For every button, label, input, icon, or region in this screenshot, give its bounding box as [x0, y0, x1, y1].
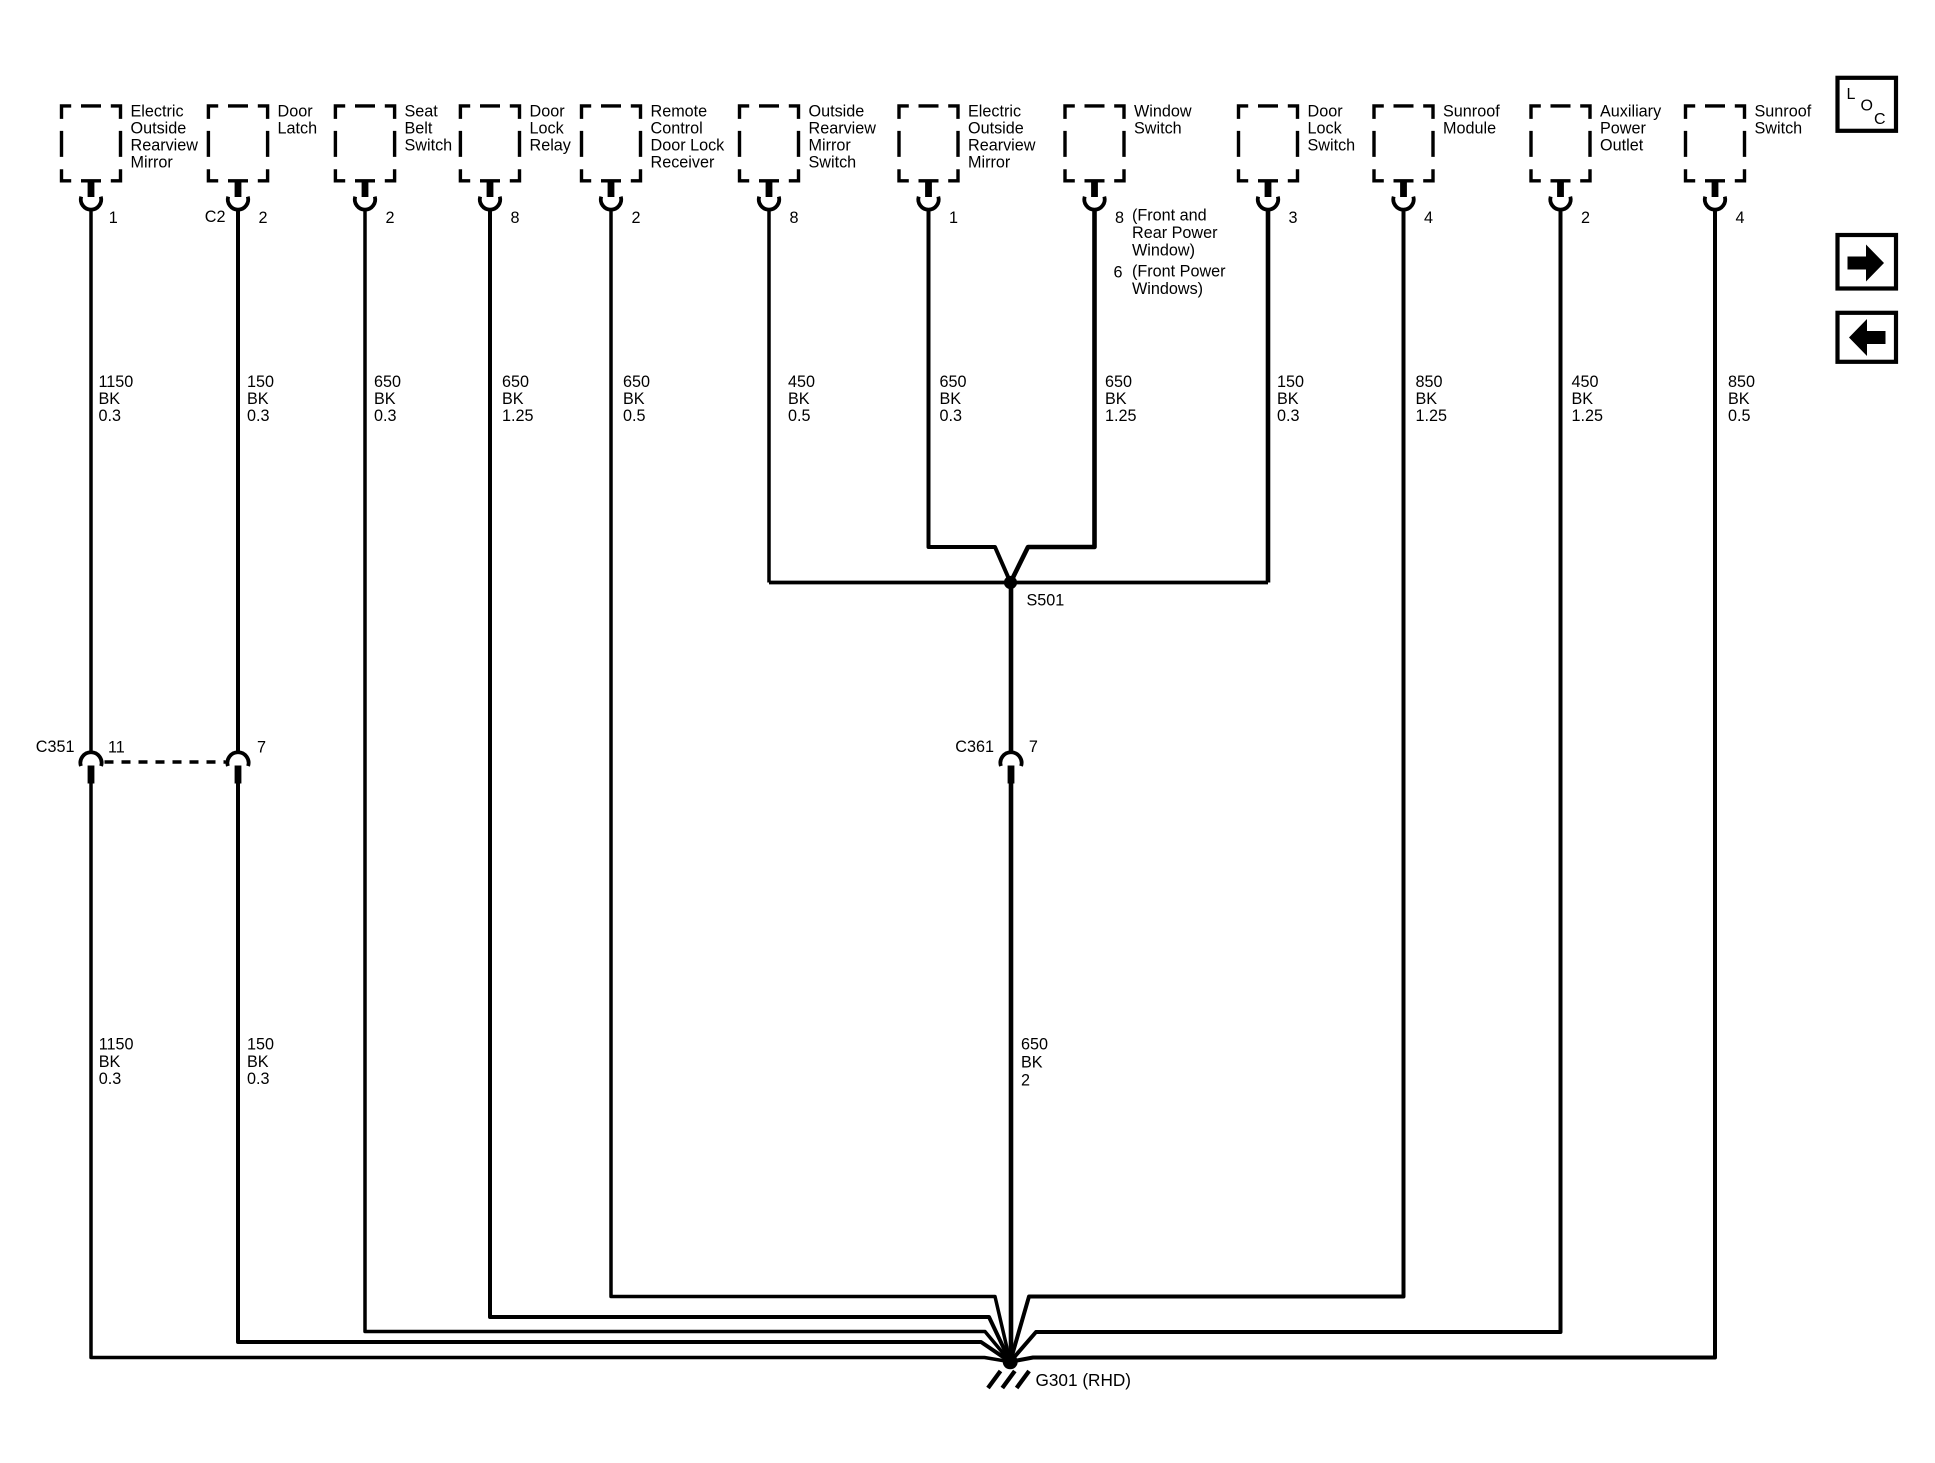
svg-text:BK: BK [1728, 390, 1750, 408]
svg-text:L: L [1847, 86, 1856, 103]
svg-text:7: 7 [1029, 738, 1038, 756]
svg-text:BK: BK [1277, 390, 1299, 408]
svg-text:150: 150 [1277, 373, 1304, 391]
svg-text:1150: 1150 [99, 373, 134, 391]
svg-text:Door: Door [1308, 103, 1344, 121]
svg-text:BK: BK [99, 1053, 121, 1071]
svg-text:Window: Window [1134, 103, 1192, 121]
svg-text:0.3: 0.3 [247, 1070, 270, 1088]
svg-text:Receiver: Receiver [651, 153, 715, 171]
svg-text:Switch: Switch [1134, 120, 1182, 138]
svg-text:Outlet: Outlet [1600, 137, 1644, 155]
svg-text:11: 11 [108, 739, 125, 757]
svg-text:Door Lock: Door Lock [651, 137, 726, 155]
svg-text:650: 650 [623, 373, 650, 391]
svg-text:BK: BK [1021, 1054, 1043, 1072]
svg-text:450: 450 [1572, 373, 1599, 391]
svg-text:0.3: 0.3 [1277, 407, 1300, 425]
svg-text:Electric: Electric [968, 103, 1021, 121]
svg-text:0.3: 0.3 [374, 407, 397, 425]
svg-text:G301 (RHD): G301 (RHD) [1036, 1370, 1132, 1390]
svg-text:Remote: Remote [651, 103, 708, 121]
svg-text:Electric: Electric [131, 103, 184, 121]
svg-text:0.3: 0.3 [99, 1070, 122, 1088]
svg-text:0.3: 0.3 [247, 407, 270, 425]
svg-text:Outside: Outside [809, 103, 865, 121]
svg-text:Auxiliary: Auxiliary [1600, 103, 1662, 121]
svg-text:Relay: Relay [530, 137, 572, 155]
svg-text:1: 1 [949, 209, 958, 227]
svg-text:Seat: Seat [405, 103, 439, 121]
svg-text:(Front Power: (Front Power [1132, 263, 1226, 281]
svg-text:0.5: 0.5 [1728, 407, 1751, 425]
svg-text:Switch: Switch [809, 153, 857, 171]
svg-text:Switch: Switch [1308, 137, 1356, 155]
svg-text:Lock: Lock [1308, 120, 1343, 138]
svg-text:BK: BK [1416, 390, 1438, 408]
svg-text:BK: BK [99, 390, 121, 408]
svg-text:8: 8 [790, 209, 799, 227]
svg-text:Rearview: Rearview [968, 137, 1036, 155]
svg-text:BK: BK [1572, 390, 1594, 408]
svg-text:BK: BK [788, 390, 810, 408]
svg-text:Belt: Belt [405, 120, 433, 138]
svg-text:S501: S501 [1027, 592, 1065, 610]
svg-text:C361: C361 [955, 738, 994, 756]
svg-text:C2: C2 [205, 208, 226, 226]
svg-text:1.25: 1.25 [1105, 407, 1137, 425]
svg-text:Rear Power: Rear Power [1132, 224, 1218, 242]
svg-text:2: 2 [259, 209, 268, 227]
svg-text:1.25: 1.25 [502, 407, 534, 425]
svg-text:2: 2 [632, 209, 641, 227]
svg-text:650: 650 [1105, 373, 1132, 391]
svg-text:650: 650 [502, 373, 529, 391]
svg-text:8: 8 [511, 209, 520, 227]
svg-text:BK: BK [502, 390, 524, 408]
svg-text:3: 3 [1289, 209, 1298, 227]
svg-text:Window): Window) [1132, 242, 1195, 260]
svg-text:0.5: 0.5 [788, 407, 811, 425]
svg-text:450: 450 [788, 373, 815, 391]
svg-text:0.3: 0.3 [940, 407, 963, 425]
svg-text:650: 650 [940, 373, 967, 391]
svg-text:8: 8 [1115, 209, 1124, 227]
svg-text:850: 850 [1728, 373, 1755, 391]
svg-text:Switch: Switch [1755, 120, 1803, 138]
svg-text:BK: BK [247, 390, 269, 408]
svg-text:Sunroof: Sunroof [1443, 103, 1500, 121]
svg-text:6: 6 [1114, 264, 1123, 282]
svg-text:Windows): Windows) [1132, 280, 1203, 298]
svg-text:Rearview: Rearview [131, 137, 199, 155]
svg-text:150: 150 [247, 1036, 274, 1054]
svg-text:4: 4 [1424, 209, 1433, 227]
svg-text:650: 650 [374, 373, 401, 391]
svg-text:7: 7 [257, 739, 266, 757]
svg-text:Mirror: Mirror [968, 153, 1011, 171]
svg-text:1: 1 [109, 209, 118, 227]
svg-text:1150: 1150 [99, 1036, 134, 1054]
svg-text:Switch: Switch [405, 137, 453, 155]
svg-text:Mirror: Mirror [809, 137, 852, 155]
svg-text:Outside: Outside [131, 120, 187, 138]
svg-text:2: 2 [1021, 1071, 1030, 1089]
svg-text:Door: Door [530, 103, 566, 121]
svg-text:1.25: 1.25 [1416, 407, 1448, 425]
svg-text:Control: Control [651, 120, 703, 138]
svg-text:2: 2 [1581, 209, 1590, 227]
svg-text:650: 650 [1021, 1036, 1048, 1054]
svg-text:0.5: 0.5 [623, 407, 646, 425]
svg-text:Outside: Outside [968, 120, 1024, 138]
svg-text:Latch: Latch [278, 120, 318, 138]
svg-text:O: O [1861, 98, 1873, 115]
svg-text:Lock: Lock [530, 120, 565, 138]
svg-text:0.3: 0.3 [99, 407, 122, 425]
svg-text:BK: BK [623, 390, 645, 408]
svg-text:Module: Module [1443, 120, 1496, 138]
svg-text:2: 2 [386, 209, 395, 227]
svg-text:BK: BK [940, 390, 962, 408]
svg-text:Sunroof: Sunroof [1755, 103, 1812, 121]
svg-text:850: 850 [1416, 373, 1443, 391]
svg-text:Mirror: Mirror [131, 153, 174, 171]
svg-text:4: 4 [1736, 209, 1745, 227]
svg-text:C: C [1874, 111, 1886, 128]
svg-text:BK: BK [1105, 390, 1127, 408]
svg-text:1.25: 1.25 [1572, 407, 1604, 425]
svg-text:Rearview: Rearview [809, 120, 877, 138]
svg-text:Door: Door [278, 103, 314, 121]
svg-text:(Front and: (Front and [1132, 207, 1207, 225]
svg-text:BK: BK [247, 1053, 269, 1071]
svg-text:150: 150 [247, 373, 274, 391]
svg-text:BK: BK [374, 390, 396, 408]
svg-text:Power: Power [1600, 120, 1646, 138]
svg-text:C351: C351 [36, 738, 75, 756]
